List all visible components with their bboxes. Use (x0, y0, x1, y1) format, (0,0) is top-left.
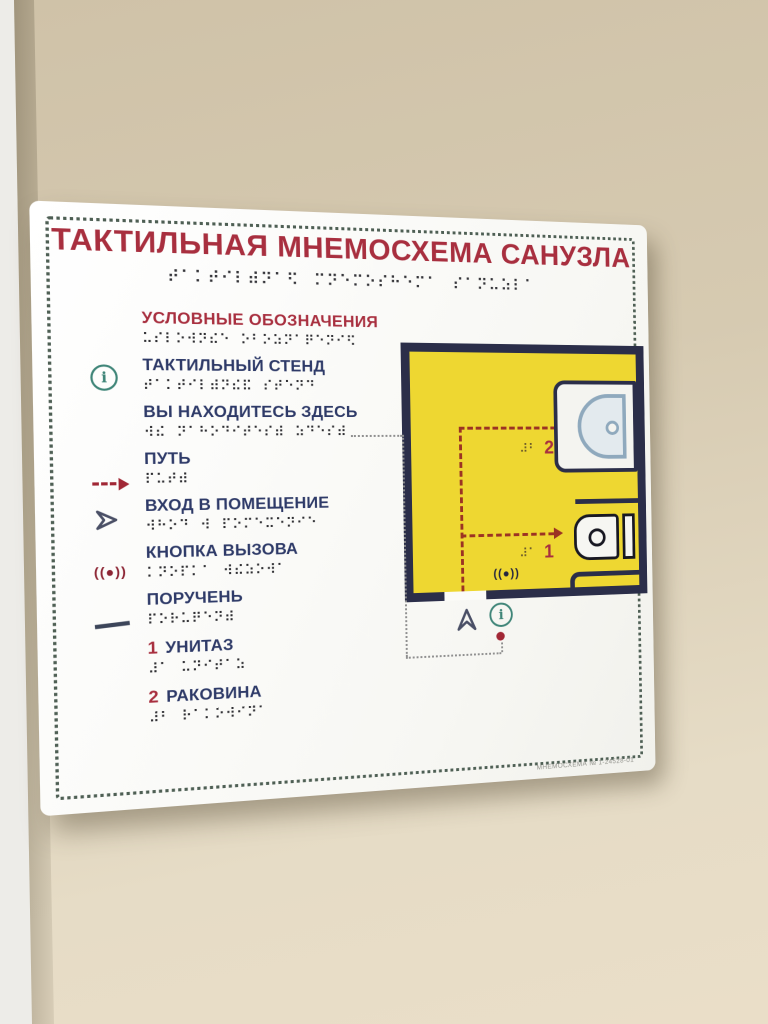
entrance-chevron-icon (93, 507, 120, 533)
legend-label: ПУТЬ (144, 449, 401, 470)
leader-line (501, 642, 503, 652)
legend-item-handrail: ПОРУЧЕНЬ ⠏⠕⠗⠥⠟⠑⠝⠾ (147, 583, 404, 629)
legend-header-label: УСЛОВНЫЕ ОБОЗНАЧЕНИЯ (141, 309, 398, 332)
legend-item-path: ПУТЬ ⠏⠥⠞⠾ (144, 449, 401, 488)
entrance-door-gap (444, 591, 486, 601)
legend-header-braille: ⠥⠎⠇⠕⠺⠝⠮⠑ ⠕⠃⠕⠵⠝⠁⠟⠑⠝⠊⠫ (142, 330, 399, 350)
photo-of-wall: ТАКТИЛЬНАЯ МНЕМОСХЕМА САНУЗЛА ⠞⠁⠅⠞⠊⠇⠾⠝⠁⠫… (0, 0, 768, 1024)
sink-icon (577, 394, 627, 459)
legend: УСЛОВНЫЕ ОБОЗНАЧЕНИЯ ⠥⠎⠇⠕⠺⠝⠮⠑ ⠕⠃⠕⠵⠝⠁⠟⠑⠝⠊… (141, 309, 404, 726)
route-path-to-sink (459, 427, 556, 430)
tactile-stand-info-icon: i (489, 602, 513, 627)
sink-label-braille: ⠼⠃ (519, 442, 537, 457)
call-button-icon: ((●)) (94, 564, 127, 581)
route-path-to-toilet (461, 532, 554, 537)
path-dashed-arrow-icon (92, 482, 125, 486)
sink-label-number: 2 (544, 438, 554, 459)
toilet-label-braille: ⠼⠁ (519, 546, 537, 561)
route-path-vertical (459, 427, 465, 592)
partition-wall (575, 498, 638, 504)
item-number: 1 (147, 638, 158, 658)
legend-item-tactile-stand: i ТАКТИЛЬНЫЙ СТЕНД ⠞⠁⠅⠞⠊⠇⠾⠝⠮⠯ ⠎⠞⠑⠝⠙ (142, 356, 399, 395)
restroom-floor-plan: ⠼⠃ 2 ⠼⠁ 1 ((●)) (401, 343, 648, 603)
toilet-map-label: ⠼⠁ 1 (519, 542, 554, 564)
legend-label: ВХОД В ПОМЕЩЕНИЕ (145, 493, 402, 516)
toilet-tank (622, 513, 635, 559)
legend-item-toilet: 1УНИТАЗ ⠼⠁ ⠥⠝⠊⠞⠁⠵ (147, 627, 404, 678)
legend-braille: ⠞⠁⠅⠞⠊⠇⠾⠝⠮⠯ ⠎⠞⠑⠝⠙ (143, 377, 400, 395)
legend-braille: ⠺⠓⠕⠙ ⠺ ⠏⠕⠍⠑⠭⠑⠝⠊⠑ (145, 513, 402, 535)
handrail (570, 570, 639, 592)
legend-header: УСЛОВНЫЕ ОБОЗНАЧЕНИЯ ⠥⠎⠇⠕⠺⠝⠮⠑ ⠕⠃⠕⠵⠝⠁⠟⠑⠝⠊… (141, 309, 398, 350)
sink-counter (553, 380, 637, 472)
info-icon: i (90, 364, 118, 390)
sink-drain (605, 421, 619, 435)
item-number: 2 (148, 687, 159, 707)
legend-label: ТАКТИЛЬНЫЙ СТЕНД (142, 356, 399, 377)
legend-label: ВЫ НАХОДИТЕСЬ ЗДЕСЬ (143, 403, 400, 422)
legend-braille: ⠺⠮ ⠝⠁⠓⠕⠙⠊⠞⠑⠎⠾ ⠵⠙⠑⠎⠾ (144, 424, 401, 441)
tactile-sign-board: ТАКТИЛЬНАЯ МНЕМОСХЕМА САНУЗЛА ⠞⠁⠅⠞⠊⠇⠾⠝⠁⠫… (29, 201, 655, 817)
toilet-icon (574, 513, 636, 560)
call-button-on-map: ((●)) (493, 566, 520, 580)
legend-item-entrance: ВХОД В ПОМЕЩЕНИЕ ⠺⠓⠕⠙ ⠺ ⠏⠕⠍⠑⠭⠑⠝⠊⠑ (145, 493, 402, 535)
route-arrowhead-toilet (554, 527, 569, 539)
legend-item-call-button: ((●)) КНОПКА ВЫЗОВА ⠅⠝⠕⠏⠅⠁ ⠺⠮⠵⠕⠺⠁ (146, 538, 403, 582)
sink-map-label: ⠼⠃ 2 (519, 438, 554, 459)
legend-braille: ⠏⠥⠞⠾ (144, 469, 401, 488)
toilet-label-number: 1 (544, 542, 554, 563)
leader-line (351, 435, 402, 437)
entrance-direction-icon (454, 606, 479, 637)
